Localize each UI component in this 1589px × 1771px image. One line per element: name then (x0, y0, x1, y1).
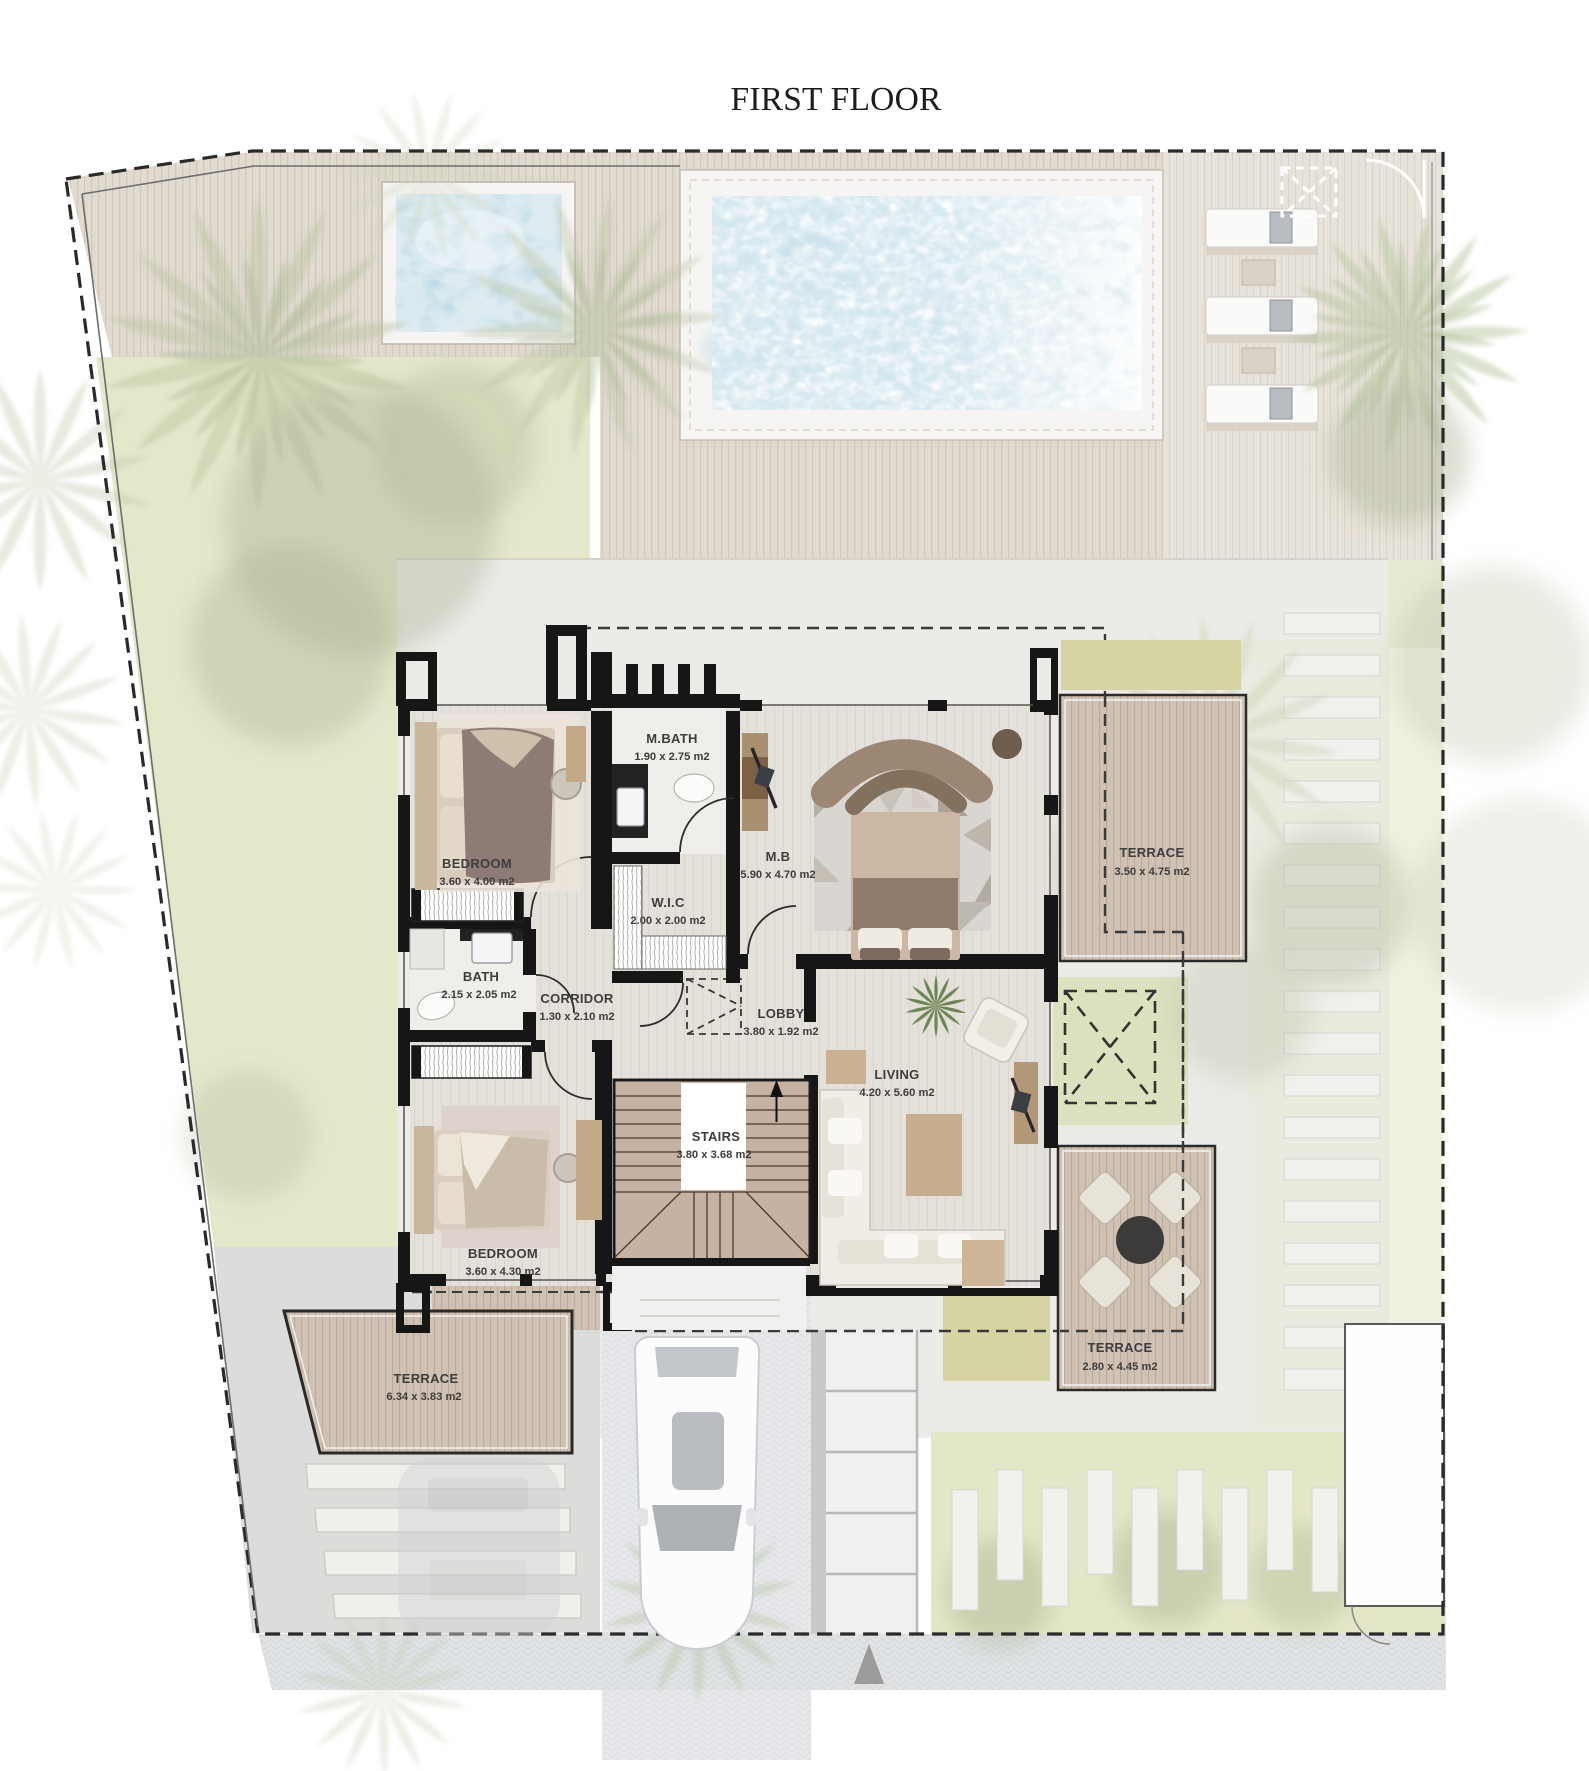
svg-text:LOBBY: LOBBY (758, 1006, 805, 1021)
svg-text:3.60 x 4.30 m2: 3.60 x 4.30 m2 (465, 1266, 540, 1278)
svg-text:CORRIDOR: CORRIDOR (540, 991, 613, 1006)
svg-text:FIRST FLOOR: FIRST FLOOR (730, 81, 941, 118)
svg-text:1.30 x 2.10 m2: 1.30 x 2.10 m2 (539, 1011, 614, 1023)
svg-text:M.BATH: M.BATH (646, 731, 697, 746)
svg-text:TERRACE: TERRACE (1120, 845, 1185, 860)
svg-text:2.80 x 4.45 m2: 2.80 x 4.45 m2 (1082, 1361, 1157, 1373)
svg-text:2.00 x 2.00 m2: 2.00 x 2.00 m2 (630, 915, 705, 927)
svg-text:STAIRS: STAIRS (692, 1129, 741, 1144)
svg-text:BEDROOM: BEDROOM (468, 1246, 538, 1261)
svg-text:5.90 x 4.70 m2: 5.90 x 4.70 m2 (740, 869, 815, 881)
svg-text:2.15 x 2.05 m2: 2.15 x 2.05 m2 (441, 989, 516, 1001)
svg-text:1.90 x 2.75 m2: 1.90 x 2.75 m2 (634, 751, 709, 763)
svg-text:3.80 x 3.68 m2: 3.80 x 3.68 m2 (676, 1149, 751, 1161)
svg-text:LIVING: LIVING (874, 1067, 919, 1082)
svg-text:TERRACE: TERRACE (394, 1371, 459, 1386)
svg-text:3.60 x 4.00 m2: 3.60 x 4.00 m2 (439, 876, 514, 888)
svg-text:BATH: BATH (463, 969, 499, 984)
svg-text:3.50 x 4.75 m2: 3.50 x 4.75 m2 (1114, 866, 1189, 878)
svg-text:3.80 x 1.92 m2: 3.80 x 1.92 m2 (743, 1026, 818, 1038)
svg-text:4.20 x 5.60 m2: 4.20 x 5.60 m2 (859, 1087, 934, 1099)
svg-text:6.34 x 3.83 m2: 6.34 x 3.83 m2 (386, 1391, 461, 1403)
svg-text:M.B: M.B (766, 849, 791, 864)
svg-text:W.I.C: W.I.C (651, 895, 685, 910)
svg-text:BEDROOM: BEDROOM (442, 856, 512, 871)
svg-text:TERRACE: TERRACE (1088, 1340, 1153, 1355)
